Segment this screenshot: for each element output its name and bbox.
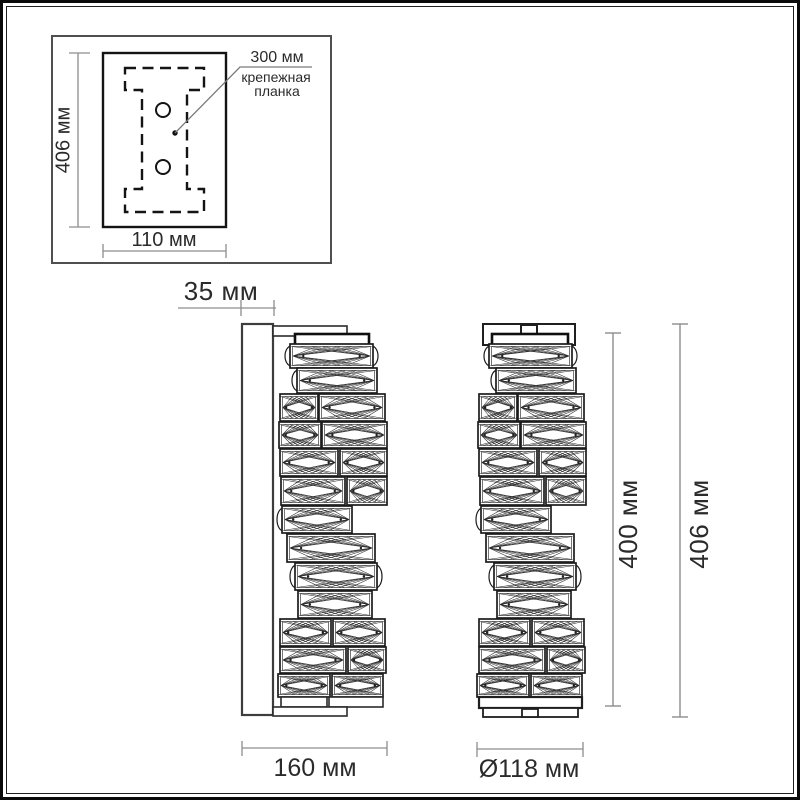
crystal-block (280, 619, 331, 646)
plate-width-label: 110 мм (132, 229, 197, 251)
crystal-block (531, 674, 582, 697)
crystal-block (476, 506, 551, 533)
crystal-block (285, 344, 378, 368)
crystal-block (477, 674, 529, 697)
crystal-block (298, 591, 372, 618)
crystal-block (532, 619, 584, 646)
crystal-block (319, 394, 385, 421)
crystal-block (281, 477, 345, 505)
crystal-block (518, 394, 584, 421)
crystal-block (348, 647, 386, 673)
crystal-block (290, 563, 382, 590)
crystal-block (332, 674, 383, 697)
crystal-block (277, 506, 352, 533)
crystal-block (347, 477, 387, 505)
crystal-block (333, 619, 385, 646)
crystal-block (340, 449, 387, 476)
crystal-block (484, 344, 577, 368)
mounting-plate-detail: 300 мм крепежная планка 406 мм 110 мм (52, 36, 331, 263)
crystal-block (489, 563, 581, 590)
crystal-block (279, 422, 321, 448)
front-bottom-tab (522, 709, 538, 717)
crystal-block (546, 477, 586, 505)
crystal-block (479, 647, 545, 673)
diameter-label: Ø118 мм (479, 755, 580, 783)
crystal-block (539, 449, 586, 476)
crystal-block (280, 394, 318, 421)
technical-drawing-sheet: 300 мм крепежная планка 406 мм 110 мм 35… (0, 0, 800, 800)
depth-label: 35 мм (184, 276, 258, 306)
crystal-block (278, 674, 330, 697)
bottom-mount-bar (273, 707, 347, 716)
crystal-block (547, 647, 585, 673)
crystal-block (280, 449, 338, 476)
crystal-block (280, 647, 346, 673)
crystal-block (479, 449, 537, 476)
crystal-block (287, 534, 375, 562)
base-segment-right (329, 697, 383, 707)
crystal-block (322, 422, 387, 448)
crystal-block (479, 394, 517, 421)
crystal-block (491, 368, 576, 393)
crystal-block (486, 534, 574, 562)
backplate-outline (103, 53, 226, 227)
crystal-block (292, 368, 377, 393)
crystal-block (479, 619, 530, 646)
front-bottom-cap (479, 697, 582, 708)
mounting-hole-bottom (156, 160, 170, 174)
callout-value-label: 300 мм (250, 49, 303, 66)
crystal-block (521, 422, 586, 448)
drawing-canvas: 300 мм крепежная планка 406 мм 110 мм 35… (0, 0, 800, 800)
overall-height-label: 406 мм (684, 479, 714, 568)
plate-height-label: 406 мм (52, 107, 74, 173)
crystal-block (478, 422, 520, 448)
wall-plate (242, 324, 273, 715)
side-width-label: 160 мм (273, 754, 356, 782)
callout-caption-line2: планка (254, 83, 300, 99)
crystal-block (480, 477, 544, 505)
crystal-block (497, 591, 571, 618)
base-segment-left (281, 697, 327, 707)
lamp-height-label: 400 мм (613, 479, 643, 568)
mounting-hole-top (156, 103, 170, 117)
